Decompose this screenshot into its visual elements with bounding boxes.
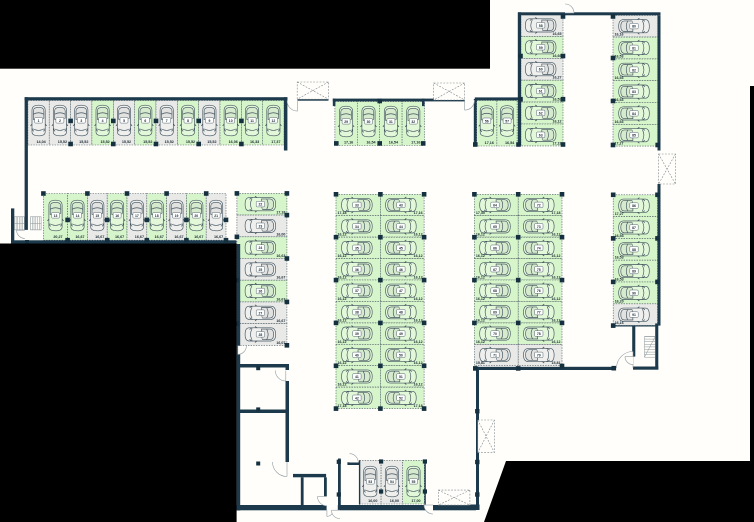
svg-text:16,27: 16,27 — [553, 76, 562, 80]
svg-text:15,52: 15,52 — [100, 140, 109, 144]
svg-text:16,63: 16,63 — [276, 254, 285, 258]
svg-text:16,12: 16,12 — [338, 297, 347, 301]
svg-text:42: 42 — [355, 396, 359, 400]
svg-text:31: 31 — [389, 120, 393, 124]
svg-text:17,16: 17,16 — [411, 140, 420, 144]
svg-text:17: 17 — [135, 214, 139, 218]
svg-text:15,52: 15,52 — [79, 140, 88, 144]
svg-text:14,04: 14,04 — [36, 140, 46, 144]
svg-text:16,12: 16,12 — [552, 318, 561, 322]
svg-text:16,67: 16,67 — [276, 319, 285, 323]
svg-text:16,53: 16,53 — [615, 256, 624, 260]
svg-text:16,67: 16,67 — [174, 235, 183, 239]
svg-text:16,12: 16,12 — [553, 120, 562, 124]
svg-text:30: 30 — [367, 120, 371, 124]
svg-text:66: 66 — [493, 246, 497, 250]
svg-text:83: 83 — [632, 90, 636, 94]
svg-text:16,12: 16,12 — [414, 340, 423, 344]
svg-text:16,67: 16,67 — [155, 235, 164, 239]
svg-text:9: 9 — [208, 119, 210, 123]
svg-text:16,53: 16,53 — [615, 76, 624, 80]
svg-text:16,67: 16,67 — [75, 235, 84, 239]
svg-text:16,53: 16,53 — [615, 234, 624, 238]
svg-text:17,18: 17,18 — [338, 404, 347, 408]
svg-text:45: 45 — [399, 246, 403, 250]
svg-text:16,12: 16,12 — [414, 318, 423, 322]
svg-text:62: 62 — [539, 112, 543, 116]
svg-text:59: 59 — [539, 46, 543, 50]
svg-text:49: 49 — [399, 332, 403, 336]
svg-text:89: 89 — [632, 270, 636, 274]
svg-text:16,67: 16,67 — [276, 276, 285, 280]
svg-text:16,67: 16,67 — [194, 235, 203, 239]
svg-text:16,12: 16,12 — [476, 233, 485, 237]
svg-text:15,81: 15,81 — [552, 361, 561, 365]
svg-text:90: 90 — [632, 291, 636, 295]
svg-text:56: 56 — [485, 119, 489, 123]
svg-text:17,19: 17,19 — [553, 141, 562, 145]
svg-text:55: 55 — [412, 480, 416, 484]
svg-text:16,07: 16,07 — [276, 341, 285, 345]
svg-text:4: 4 — [102, 119, 104, 123]
svg-text:61: 61 — [539, 90, 543, 94]
svg-text:43: 43 — [399, 204, 403, 208]
svg-text:34: 34 — [355, 225, 359, 229]
svg-text:2: 2 — [59, 119, 61, 123]
svg-text:44: 44 — [399, 225, 403, 229]
svg-text:53: 53 — [368, 480, 372, 484]
svg-text:16,06: 16,06 — [229, 140, 238, 144]
svg-text:17,37: 17,37 — [271, 140, 280, 144]
svg-text:16,12: 16,12 — [552, 297, 561, 301]
svg-text:16,12: 16,12 — [476, 340, 485, 344]
svg-text:17,16: 17,16 — [485, 141, 494, 145]
svg-text:7: 7 — [166, 119, 168, 123]
svg-text:72: 72 — [537, 204, 541, 208]
svg-text:19: 19 — [175, 214, 179, 218]
svg-text:88: 88 — [632, 248, 636, 252]
svg-text:16,12: 16,12 — [414, 383, 423, 387]
svg-text:14: 14 — [76, 214, 80, 218]
svg-text:33: 33 — [355, 204, 359, 208]
svg-text:60: 60 — [539, 68, 543, 72]
svg-text:15,52: 15,52 — [58, 140, 67, 144]
svg-text:28: 28 — [259, 333, 263, 337]
svg-text:3: 3 — [80, 119, 82, 123]
svg-text:64: 64 — [493, 204, 497, 208]
svg-text:20: 20 — [194, 214, 198, 218]
svg-text:75: 75 — [537, 268, 541, 272]
svg-text:16,12: 16,12 — [414, 276, 423, 280]
svg-text:77: 77 — [537, 311, 541, 315]
svg-text:16: 16 — [115, 214, 119, 218]
svg-text:69: 69 — [493, 311, 497, 315]
svg-text:16,16: 16,16 — [615, 33, 624, 37]
svg-text:12: 12 — [272, 119, 276, 123]
svg-text:40: 40 — [355, 354, 359, 358]
svg-text:79: 79 — [537, 354, 541, 358]
svg-text:16,00: 16,00 — [390, 499, 399, 503]
svg-text:54: 54 — [390, 480, 394, 484]
svg-text:48: 48 — [399, 311, 403, 315]
svg-text:16,12: 16,12 — [338, 340, 347, 344]
svg-text:16,53: 16,53 — [615, 278, 624, 282]
svg-text:85: 85 — [632, 134, 636, 138]
svg-text:15,52: 15,52 — [122, 140, 131, 144]
svg-text:8: 8 — [187, 119, 189, 123]
svg-text:46: 46 — [399, 268, 403, 272]
svg-text:76: 76 — [537, 289, 541, 293]
svg-text:74: 74 — [537, 246, 541, 250]
svg-text:16,12: 16,12 — [338, 254, 347, 258]
svg-text:73: 73 — [537, 225, 541, 229]
svg-text:78: 78 — [537, 332, 541, 336]
svg-text:16,20: 16,20 — [615, 299, 624, 303]
svg-text:1: 1 — [38, 119, 40, 123]
svg-text:70: 70 — [493, 332, 497, 336]
svg-text:84: 84 — [632, 112, 636, 116]
svg-text:36: 36 — [355, 268, 359, 272]
svg-text:65: 65 — [493, 225, 497, 229]
svg-text:16,12: 16,12 — [552, 254, 561, 258]
svg-text:16,12: 16,12 — [338, 276, 347, 280]
svg-text:17,30: 17,30 — [476, 211, 485, 215]
svg-text:63: 63 — [539, 133, 543, 137]
svg-text:22: 22 — [259, 203, 263, 207]
svg-text:71: 71 — [493, 354, 497, 358]
svg-text:68: 68 — [493, 289, 497, 293]
svg-text:87: 87 — [632, 226, 636, 230]
svg-text:16,16: 16,16 — [615, 321, 624, 325]
svg-text:17,27: 17,27 — [615, 142, 624, 146]
svg-text:91: 91 — [632, 313, 636, 317]
svg-text:16,65: 16,65 — [553, 32, 562, 36]
svg-text:16,53: 16,53 — [553, 98, 562, 102]
svg-text:39: 39 — [355, 332, 359, 336]
svg-text:16,12: 16,12 — [414, 297, 423, 301]
svg-text:67: 67 — [493, 268, 497, 272]
svg-text:6: 6 — [144, 119, 146, 123]
svg-text:16,12: 16,12 — [338, 233, 347, 237]
svg-text:17,18: 17,18 — [338, 211, 347, 215]
svg-text:17,00: 17,00 — [411, 499, 420, 503]
svg-text:16,12: 16,12 — [414, 233, 423, 237]
svg-text:15,52: 15,52 — [186, 140, 195, 144]
svg-text:16,67: 16,67 — [135, 235, 144, 239]
svg-text:47: 47 — [399, 289, 403, 293]
svg-text:15,52: 15,52 — [143, 140, 152, 144]
svg-text:16,67: 16,67 — [214, 235, 223, 239]
svg-text:17,27: 17,27 — [615, 212, 624, 216]
svg-text:82: 82 — [632, 68, 636, 72]
svg-text:15,81: 15,81 — [476, 361, 485, 365]
svg-text:16,54: 16,54 — [389, 140, 399, 144]
svg-text:10: 10 — [229, 119, 233, 123]
svg-text:16,67: 16,67 — [95, 235, 104, 239]
svg-text:16,66: 16,66 — [553, 54, 562, 58]
svg-text:11: 11 — [250, 119, 254, 123]
svg-text:16,00: 16,00 — [368, 499, 377, 503]
svg-text:15: 15 — [95, 214, 99, 218]
svg-text:41: 41 — [355, 375, 359, 379]
svg-text:17,18: 17,18 — [414, 404, 423, 408]
svg-text:58: 58 — [539, 24, 543, 28]
svg-text:29: 29 — [344, 120, 348, 124]
svg-text:16,12: 16,12 — [476, 254, 485, 258]
svg-text:17,16: 17,16 — [414, 211, 423, 215]
svg-text:37: 37 — [355, 289, 359, 293]
svg-text:16,12: 16,12 — [338, 383, 347, 387]
svg-text:80: 80 — [632, 25, 636, 29]
svg-text:16,12: 16,12 — [338, 318, 347, 322]
svg-text:16,53: 16,53 — [615, 54, 624, 58]
svg-text:32: 32 — [411, 120, 415, 124]
svg-text:16,12: 16,12 — [476, 297, 485, 301]
svg-text:5: 5 — [123, 119, 125, 123]
svg-text:16,67: 16,67 — [115, 235, 124, 239]
svg-text:16,67: 16,67 — [276, 297, 285, 301]
svg-text:16,12: 16,12 — [414, 254, 423, 258]
svg-text:57: 57 — [505, 119, 509, 123]
svg-text:16,33: 16,33 — [250, 140, 259, 144]
svg-text:81: 81 — [632, 47, 636, 51]
svg-text:17,18: 17,18 — [552, 211, 561, 215]
svg-text:38: 38 — [355, 311, 359, 315]
svg-text:16,53: 16,53 — [615, 120, 624, 124]
svg-text:21: 21 — [214, 214, 218, 218]
svg-text:16,12: 16,12 — [476, 318, 485, 322]
svg-text:35: 35 — [355, 246, 359, 250]
svg-text:16,12: 16,12 — [414, 361, 423, 365]
svg-text:50: 50 — [399, 354, 403, 358]
svg-text:27: 27 — [259, 311, 263, 315]
svg-text:16,12: 16,12 — [552, 340, 561, 344]
svg-text:23: 23 — [259, 224, 263, 228]
svg-text:16,53: 16,53 — [615, 98, 624, 102]
svg-text:16,12: 16,12 — [552, 276, 561, 280]
svg-text:16,12: 16,12 — [338, 361, 347, 365]
svg-text:15,52: 15,52 — [207, 140, 216, 144]
svg-text:51: 51 — [399, 375, 403, 379]
svg-text:18: 18 — [155, 214, 159, 218]
svg-text:15,52: 15,52 — [165, 140, 174, 144]
svg-text:16,54: 16,54 — [366, 140, 376, 144]
svg-text:16,00: 16,00 — [276, 232, 285, 236]
svg-text:17,16: 17,16 — [344, 140, 353, 144]
svg-text:20,27: 20,27 — [53, 235, 62, 239]
svg-text:26: 26 — [259, 290, 263, 294]
svg-text:16,12: 16,12 — [552, 233, 561, 237]
svg-text:25: 25 — [259, 268, 263, 272]
svg-text:17,18: 17,18 — [276, 211, 285, 215]
svg-text:16,12: 16,12 — [476, 276, 485, 280]
svg-text:13: 13 — [54, 214, 58, 218]
svg-text:24: 24 — [259, 246, 263, 250]
svg-text:86: 86 — [632, 204, 636, 208]
svg-text:52: 52 — [399, 396, 403, 400]
svg-text:16,54: 16,54 — [505, 141, 515, 145]
